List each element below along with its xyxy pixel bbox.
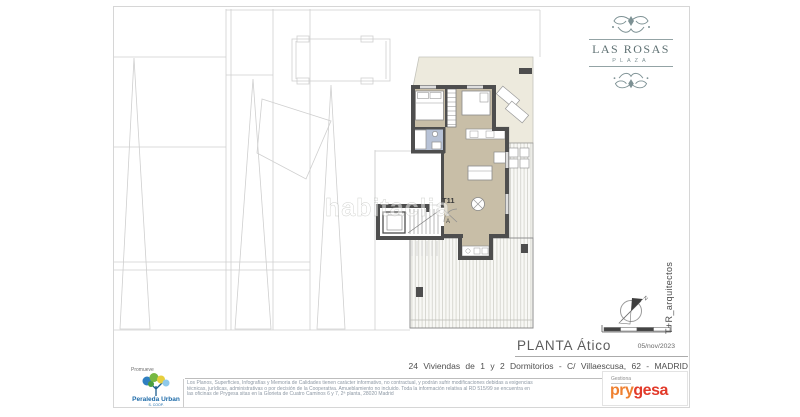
ornament-flourish-bottom	[608, 69, 654, 91]
logo-rule-top	[589, 39, 673, 40]
manager-logo: Gestiona prygesa	[602, 371, 688, 406]
developer-name: Peraleda Urban	[120, 396, 192, 403]
north-arrow: N	[619, 295, 649, 324]
manager-name-right: gesa	[633, 382, 667, 399]
developer-subname: S. COOP.	[120, 403, 192, 407]
peraleda-tree-icon	[137, 373, 175, 397]
watermark: habitaclia	[325, 194, 450, 222]
disclaimer-line: las oficinas de Prygesa sitas en la Glor…	[187, 392, 599, 398]
planter	[519, 68, 532, 74]
logo-rule-bottom	[589, 66, 673, 67]
plan-date: 05/nov/2023	[628, 343, 675, 350]
scale-bar	[602, 325, 671, 332]
title-rule	[515, 356, 688, 357]
project-logo: LAS ROSAS PLAZA	[572, 13, 690, 91]
project-name: LAS ROSAS	[572, 42, 690, 57]
planter	[416, 287, 423, 297]
legal-disclaimer: Los Planos, Superficies, Infografías y M…	[187, 381, 599, 398]
plan-title: PLANTA Ático	[517, 338, 611, 353]
project-address: 24 Viviendas de 1 y 2 Dormitorios - C/ V…	[250, 361, 688, 371]
titleblock-rule	[185, 378, 602, 379]
apartment-t11	[376, 85, 509, 260]
manager-name: prygesa	[610, 382, 668, 400]
project-subname: PLAZA	[572, 58, 690, 64]
plan-sheet-page: T11 A habitaclia N	[0, 0, 800, 417]
manager-name-left: pry	[610, 382, 633, 399]
north-label: N	[642, 295, 649, 302]
architect-name: T+R_arquitectos	[664, 234, 677, 334]
planter	[521, 244, 528, 253]
ornament-flourish-top	[608, 13, 654, 37]
